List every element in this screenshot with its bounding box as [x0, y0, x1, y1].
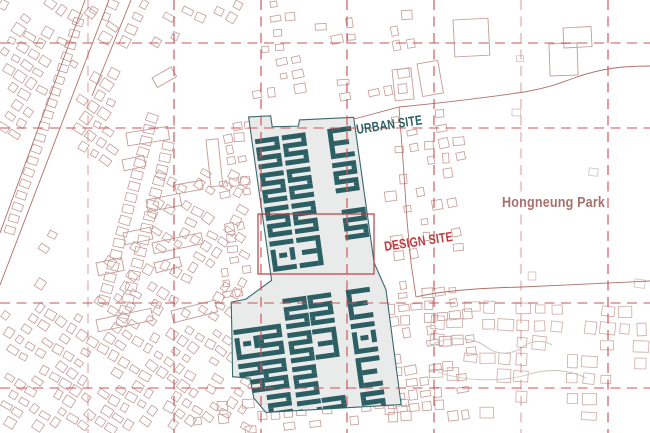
site-plan-map: URBAN SITE DESIGN SITE Hongneung Park	[0, 0, 650, 433]
fabric-cluster	[480, 391, 597, 420]
south-road-line	[416, 281, 650, 297]
design-buildings-layer	[197, 101, 404, 433]
design-site-label: DESIGN SITE	[383, 229, 454, 255]
labels-layer: URBAN SITE DESIGN SITE Hongneung Park	[355, 112, 605, 254]
fabric-cluster	[34, 230, 57, 290]
building-module	[269, 238, 297, 272]
fabric-cluster	[1, 301, 252, 433]
park-layer	[399, 66, 650, 380]
building-module	[233, 327, 261, 361]
building-module	[350, 321, 378, 355]
fabric-row	[4, 17, 84, 235]
park-label: Hongneung Park	[502, 193, 605, 210]
park-path	[438, 371, 586, 380]
park-boundary	[399, 66, 650, 107]
site-plan-page: URBAN SITE DESIGN SITE Hongneung Park	[0, 0, 650, 433]
fabric-cluster	[252, 1, 415, 101]
site-group	[197, 101, 404, 433]
fabric-cluster	[0, 0, 120, 166]
building-module	[321, 395, 349, 429]
fabric-cluster	[57, 0, 243, 48]
